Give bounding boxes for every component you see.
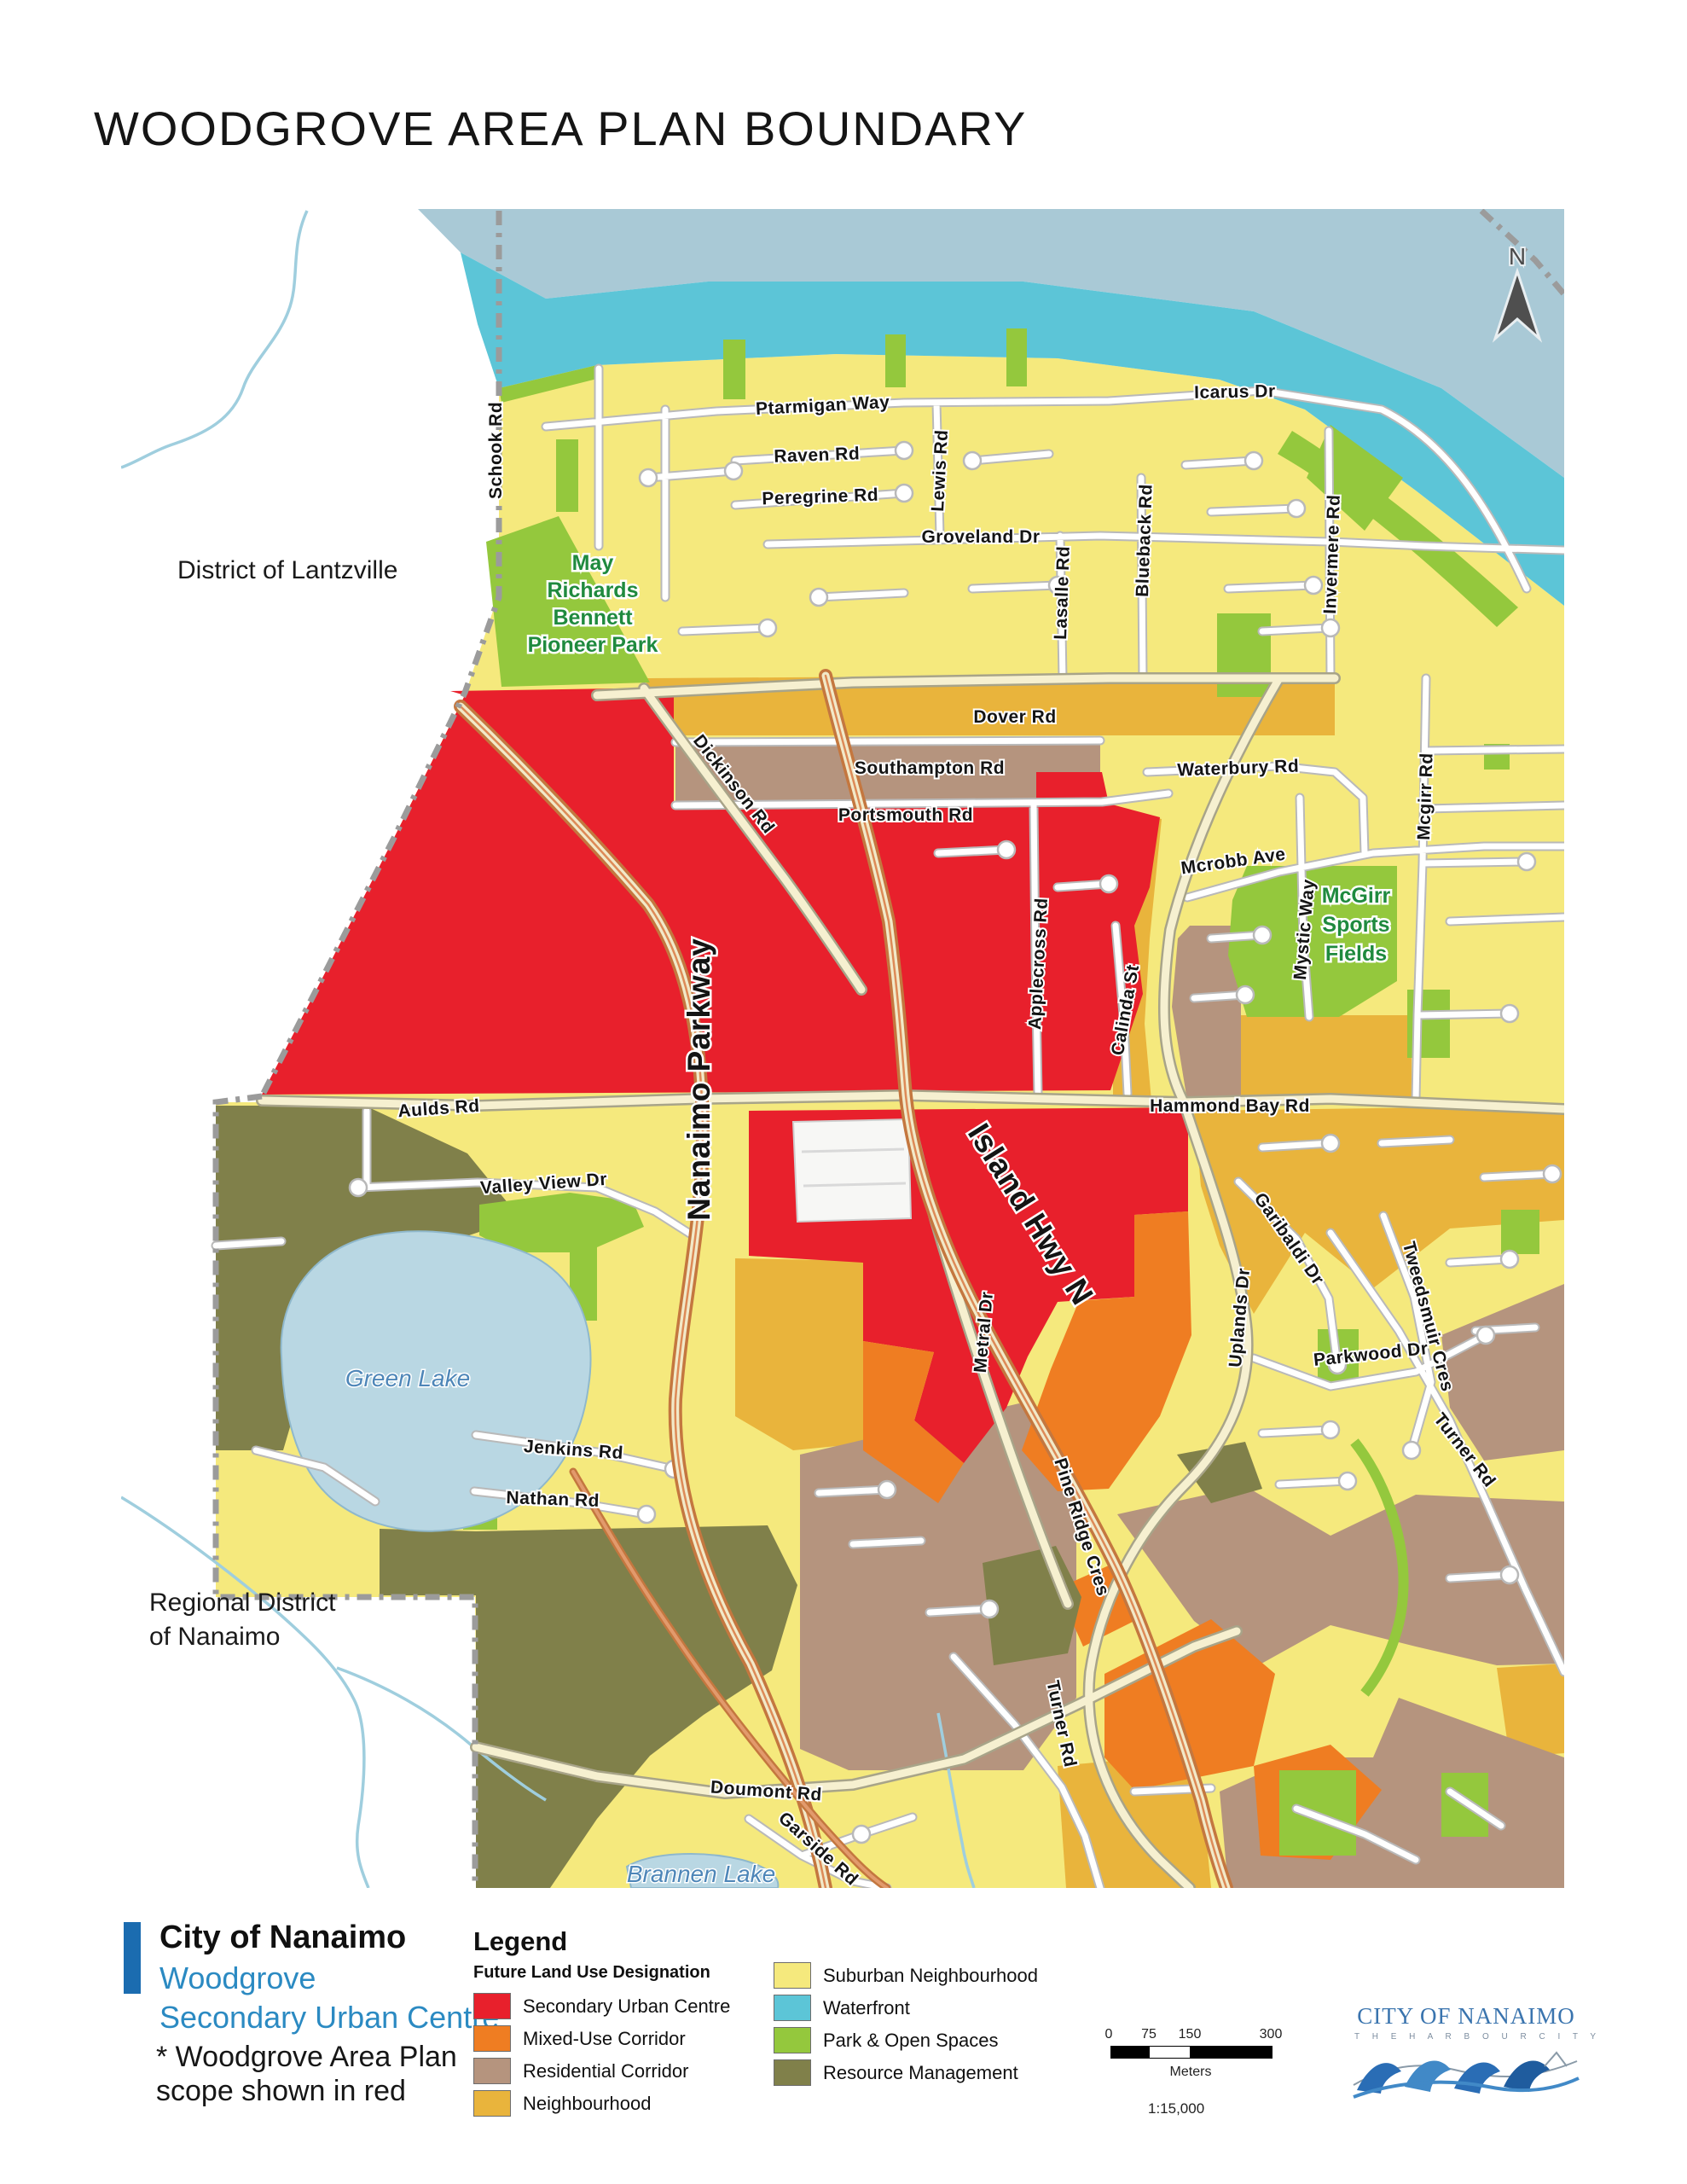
label-portsmouth: Portsmouth Rd: [838, 805, 973, 825]
label-blueback: Blueback Rd: [1133, 484, 1157, 597]
label-icarus: Icarus Dr: [1194, 381, 1276, 403]
page-title: WOODGROVE AREA PLAN BOUNDARY: [94, 101, 1027, 156]
brand-subtitle-2: Secondary Urban Centre: [159, 2000, 499, 2036]
north-label: N: [1509, 243, 1526, 270]
label-mcgirr-fields: McGirr Sports Fields: [1322, 884, 1391, 966]
legend-item-residential-corridor: Residential Corridor: [473, 2058, 688, 2084]
label-invermere: Invermere Rd: [1320, 494, 1344, 614]
legend-item-neighbourhood: Neighbourhood: [473, 2090, 651, 2117]
swatch-neighbourhood: [473, 2090, 511, 2117]
legend-heading: Legend: [473, 1926, 567, 1957]
map-canvas[interactable]: N District of Lantzville Regional Distri…: [121, 209, 1564, 1888]
swatch-suburban: [774, 1962, 811, 1989]
swatch-mixed-use: [473, 2025, 511, 2052]
label-dover: Dover Rd: [973, 707, 1056, 727]
scale-bar-segment: [1150, 2047, 1190, 2058]
legend-item-secondary-urban-centre: Secondary Urban Centre: [473, 1993, 730, 2019]
svg-text:Bennett: Bennett: [553, 606, 633, 630]
label-nanaimo-parkway: Nanaimo Parkway: [681, 938, 716, 1221]
legend-item-suburban: Suburban Neighbourhood: [774, 1962, 1038, 1989]
page: WOODGROVE AREA PLAN BOUNDARY: [0, 0, 1687, 2184]
label-mcgirr-rd: Mcgirr Rd: [1414, 752, 1437, 840]
label-groveland: Groveland Dr: [921, 527, 1040, 547]
scale-ratio: 1:15,000: [1148, 2100, 1204, 2117]
label-southampton: Southampton Rd: [855, 758, 1005, 778]
brand-title: City of Nanaimo: [159, 1920, 406, 1956]
commercial-parking-patch: [793, 1119, 911, 1222]
label-lasalle: Lasalle Rd: [1051, 545, 1074, 640]
swatch-residential-corridor: [473, 2058, 511, 2084]
label-raven: Raven Rd: [774, 444, 861, 467]
label-district-lantzville: District of Lantzville: [177, 556, 397, 584]
map-svg: N District of Lantzville Regional Distri…: [121, 209, 1564, 1888]
swatch-secondary-urban-centre: [473, 1993, 511, 2019]
brand-subtitle-1: Woodgrove: [159, 1960, 316, 1996]
label-green-lake: Green Lake: [345, 1365, 470, 1391]
scale-ticks: 0 75 150 300: [1109, 2027, 1272, 2042]
label-rdn-2: of Nanaimo: [149, 1623, 280, 1651]
svg-text:Fields: Fields: [1325, 942, 1387, 966]
svg-text:Richards: Richards: [548, 578, 639, 602]
brand-note-1: * Woodgrove Area Plan: [156, 2041, 457, 2074]
swatch-resource-management: [774, 2059, 811, 2086]
legend-item-resource-management: Resource Management: [774, 2059, 1018, 2086]
label-nathan: Nathan Rd: [506, 1488, 600, 1511]
label-brannen-lake: Brannen Lake: [627, 1861, 775, 1887]
logo-wordmark: CITY OF NANAIMO: [1354, 2003, 1578, 2030]
label-schook-rd: Schook Rd: [486, 402, 506, 499]
label-rdn-1: Regional District: [149, 1589, 336, 1617]
scale-units: Meters: [1170, 2065, 1212, 2080]
legend-item-mixed-use: Mixed-Use Corridor: [473, 2025, 686, 2052]
label-hammond: Hammond Bay Rd: [1150, 1096, 1310, 1116]
svg-text:McGirr: McGirr: [1322, 884, 1391, 908]
logo-waves-icon: [1352, 2041, 1580, 2111]
brand-note-2: scope shown in red: [156, 2075, 406, 2108]
scale-bar: [1110, 2046, 1272, 2059]
svg-text:May: May: [572, 551, 614, 575]
svg-text:Sports: Sports: [1322, 913, 1389, 937]
swatch-waterfront: [774, 1995, 811, 2021]
legend-subheading: Future Land Use Designation: [473, 1963, 710, 1983]
label-peregrine: Peregrine Rd: [762, 485, 878, 509]
svg-text:Pioneer Park: Pioneer Park: [528, 633, 658, 657]
brand-accent-bar: [124, 1922, 141, 1994]
legend-item-parks: Park & Open Spaces: [774, 2027, 998, 2053]
legend-item-waterfront: Waterfront: [774, 1995, 910, 2021]
swatch-parks: [774, 2027, 811, 2053]
